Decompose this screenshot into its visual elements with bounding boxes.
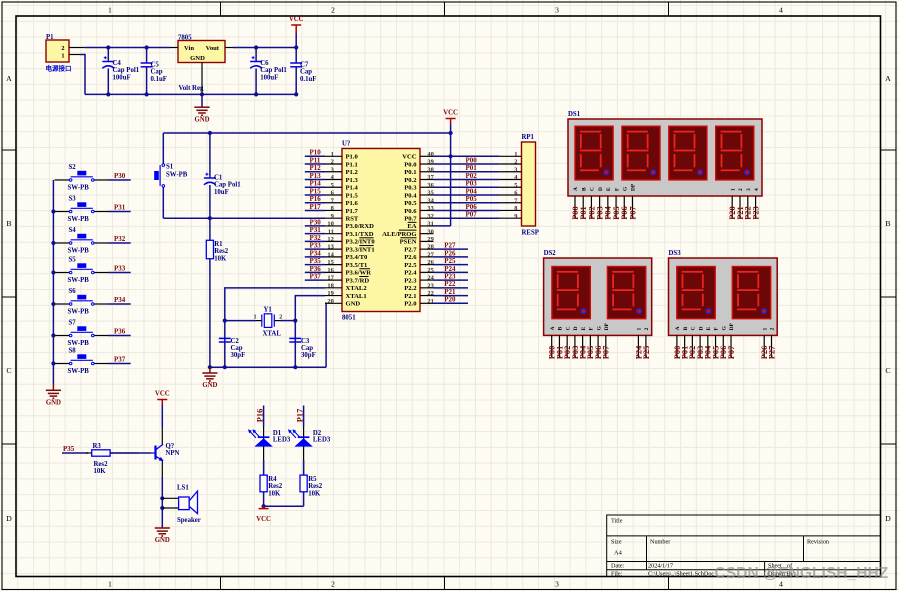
svg-text:1: 1 xyxy=(108,580,112,589)
svg-text:P07: P07 xyxy=(466,211,478,219)
svg-text:1: 1 xyxy=(730,188,736,191)
svg-text:10K: 10K xyxy=(308,490,321,497)
svg-text:8: 8 xyxy=(514,205,517,212)
svg-text:Cap: Cap xyxy=(151,69,163,76)
svg-text:GND: GND xyxy=(202,382,217,389)
svg-text:1: 1 xyxy=(254,314,257,320)
svg-text:19: 19 xyxy=(327,290,333,297)
svg-text:P0.2: P0.2 xyxy=(404,177,417,184)
svg-text:Cap Pol1: Cap Pol1 xyxy=(113,67,140,74)
svg-text:2: 2 xyxy=(331,580,335,589)
svg-text:P07: P07 xyxy=(727,346,736,360)
svg-text:1: 1 xyxy=(762,327,768,330)
svg-text:B: B xyxy=(581,187,587,191)
svg-text:Cap Pol1: Cap Pol1 xyxy=(260,67,287,74)
svg-text:SW-PB: SW-PB xyxy=(68,368,90,375)
svg-text:16: 16 xyxy=(327,267,334,274)
svg-text:P3.1/TXD: P3.1/TXD xyxy=(346,231,374,238)
svg-text:DP: DP xyxy=(604,323,610,331)
svg-text:P33: P33 xyxy=(114,264,126,272)
svg-text:P3.0/RXD: P3.0/RXD xyxy=(346,223,375,230)
svg-text:P0.4: P0.4 xyxy=(404,192,417,199)
svg-text:22: 22 xyxy=(427,290,433,297)
svg-text:15: 15 xyxy=(327,259,333,266)
svg-text:32: 32 xyxy=(427,213,433,220)
svg-text:C1: C1 xyxy=(214,175,223,182)
svg-text:0.1uF: 0.1uF xyxy=(300,76,316,83)
svg-text:P0.3: P0.3 xyxy=(404,185,417,192)
svg-text:SW-PB: SW-PB xyxy=(68,277,90,284)
svg-text:C6: C6 xyxy=(260,60,269,67)
svg-text:C: C xyxy=(565,326,571,330)
svg-text:C: C xyxy=(6,366,11,375)
svg-text:P3.2/INT0: P3.2/INT0 xyxy=(346,239,376,246)
svg-text:C3: C3 xyxy=(301,338,310,345)
svg-text:Volt Reg: Volt Reg xyxy=(179,85,204,92)
svg-text:Vout: Vout xyxy=(206,45,220,52)
svg-text:A: A xyxy=(550,326,556,330)
svg-text:File:: File: xyxy=(611,570,623,577)
svg-text:38: 38 xyxy=(427,166,433,173)
svg-text:C4: C4 xyxy=(113,60,122,67)
svg-text:GND: GND xyxy=(155,537,170,544)
svg-text:2: 2 xyxy=(279,314,282,320)
svg-text:P0.0: P0.0 xyxy=(404,161,417,168)
svg-text:Number: Number xyxy=(650,539,670,546)
svg-text:1: 1 xyxy=(637,327,643,330)
svg-text:RST: RST xyxy=(346,215,359,222)
svg-text:S6: S6 xyxy=(69,288,77,295)
svg-text:XTAL2: XTAL2 xyxy=(346,285,368,292)
svg-text:100uF: 100uF xyxy=(260,74,278,81)
svg-text:P32: P32 xyxy=(114,235,126,243)
svg-text:35: 35 xyxy=(427,190,433,197)
svg-text:A: A xyxy=(675,326,681,330)
svg-text:P27: P27 xyxy=(767,346,776,360)
svg-text:100uF: 100uF xyxy=(113,74,131,81)
svg-text:5: 5 xyxy=(514,182,517,189)
svg-text:30pF: 30pF xyxy=(231,352,246,359)
svg-text:S4: S4 xyxy=(69,227,77,234)
svg-text:P3.6/WR: P3.6/WR xyxy=(346,270,372,277)
svg-text:P20: P20 xyxy=(444,296,456,304)
svg-text:S3: S3 xyxy=(69,196,77,203)
svg-text:P1.2: P1.2 xyxy=(346,169,359,176)
svg-text:P2.7: P2.7 xyxy=(404,246,417,253)
svg-text:Title: Title xyxy=(611,518,623,525)
svg-text:U?: U? xyxy=(342,141,350,148)
svg-text:1: 1 xyxy=(514,151,517,158)
svg-text:SW-PB: SW-PB xyxy=(68,248,90,255)
svg-text:D: D xyxy=(698,326,704,330)
svg-text:ALE/PROG: ALE/PROG xyxy=(382,231,416,238)
svg-text:5: 5 xyxy=(331,182,334,189)
svg-text:3: 3 xyxy=(514,166,517,173)
svg-text:3: 3 xyxy=(331,166,334,173)
svg-text:S2: S2 xyxy=(69,164,77,171)
svg-text:2: 2 xyxy=(644,327,650,330)
svg-text:B: B xyxy=(6,219,11,228)
svg-text:P3.4/T0: P3.4/T0 xyxy=(346,254,368,261)
svg-text:Speaker: Speaker xyxy=(177,517,201,524)
svg-text:10K: 10K xyxy=(214,255,227,262)
svg-text:B: B xyxy=(683,326,689,330)
svg-text:DP: DP xyxy=(729,323,735,331)
svg-text:3: 3 xyxy=(555,6,559,15)
svg-text:2: 2 xyxy=(331,159,334,166)
svg-text:LED3: LED3 xyxy=(313,436,331,443)
svg-text:7805: 7805 xyxy=(178,35,192,42)
svg-text:EA: EA xyxy=(407,223,416,230)
svg-text:10: 10 xyxy=(327,221,333,228)
svg-text:XTAL: XTAL xyxy=(263,331,282,338)
svg-text:P2.0: P2.0 xyxy=(404,301,417,308)
svg-text:R3: R3 xyxy=(93,443,102,450)
svg-text:DP: DP xyxy=(631,183,637,191)
svg-text:P0.6: P0.6 xyxy=(404,208,417,215)
svg-text:B: B xyxy=(558,326,564,330)
svg-text:P2.6: P2.6 xyxy=(404,254,417,261)
svg-text:P1: P1 xyxy=(46,34,54,41)
svg-text:VCC: VCC xyxy=(155,390,170,397)
svg-text:R4: R4 xyxy=(268,476,277,483)
svg-text:P07: P07 xyxy=(602,346,611,360)
svg-text:B: B xyxy=(885,219,890,228)
svg-text:P1.0: P1.0 xyxy=(346,154,359,161)
svg-text:14: 14 xyxy=(327,251,334,258)
svg-text:P23: P23 xyxy=(752,206,761,220)
svg-text:VCC: VCC xyxy=(402,154,417,161)
svg-text:SW-PB: SW-PB xyxy=(68,216,90,223)
svg-text:17: 17 xyxy=(327,275,334,282)
svg-text:GND: GND xyxy=(194,116,209,123)
svg-text:Cap: Cap xyxy=(231,345,243,352)
svg-text:20: 20 xyxy=(327,298,333,305)
svg-text:30: 30 xyxy=(427,228,433,235)
svg-text:21: 21 xyxy=(427,298,433,305)
svg-text:P1.6: P1.6 xyxy=(346,200,359,207)
svg-text:A: A xyxy=(6,74,12,83)
svg-text:Res2: Res2 xyxy=(94,461,109,468)
svg-text:2024/1/17: 2024/1/17 xyxy=(648,562,673,569)
svg-text:P2.4: P2.4 xyxy=(404,270,417,277)
svg-text:1: 1 xyxy=(61,53,64,60)
svg-text:P35: P35 xyxy=(63,445,75,453)
svg-text:R5: R5 xyxy=(308,476,317,483)
svg-text:P37: P37 xyxy=(114,355,126,363)
svg-text:D: D xyxy=(573,326,579,330)
svg-text:Cap Pol1: Cap Pol1 xyxy=(214,182,241,189)
svg-text:P2.1: P2.1 xyxy=(404,293,416,300)
svg-text:P2.5: P2.5 xyxy=(404,262,417,269)
svg-text:DS2: DS2 xyxy=(544,250,557,257)
svg-text:10K: 10K xyxy=(94,468,107,475)
svg-text:4: 4 xyxy=(754,188,760,191)
svg-text:A4: A4 xyxy=(614,550,623,557)
svg-text:CSDN @ENGLISH_HHZ: CSDN @ENGLISH_HHZ xyxy=(715,565,889,582)
svg-text:1: 1 xyxy=(108,6,112,15)
svg-text:GND: GND xyxy=(46,400,61,407)
svg-text:P30: P30 xyxy=(114,172,126,180)
svg-text:SW-PB: SW-PB xyxy=(166,172,188,179)
svg-text:LS1: LS1 xyxy=(177,485,189,492)
svg-text:C: C xyxy=(691,326,697,330)
svg-text:P1.5: P1.5 xyxy=(346,192,359,199)
svg-text:2: 2 xyxy=(770,327,776,330)
svg-text:GND: GND xyxy=(190,55,205,62)
svg-text:30pF: 30pF xyxy=(301,352,316,359)
svg-text:RESP: RESP xyxy=(522,230,539,237)
svg-text:Q?: Q? xyxy=(166,443,175,450)
svg-text:C7: C7 xyxy=(300,62,309,69)
svg-text:E: E xyxy=(706,326,712,330)
svg-text:S1: S1 xyxy=(166,164,174,171)
svg-text:VCC: VCC xyxy=(256,516,271,523)
svg-text:31: 31 xyxy=(427,221,433,228)
svg-text:Size: Size xyxy=(611,539,622,546)
svg-text:D: D xyxy=(6,514,12,523)
svg-text:NPN: NPN xyxy=(166,450,180,457)
svg-text:E: E xyxy=(581,326,587,330)
svg-text:Res2: Res2 xyxy=(214,248,229,255)
svg-text:29: 29 xyxy=(427,236,433,243)
svg-text:C:\Users\..\Sheet1.SchDoc: C:\Users\..\Sheet1.SchDoc xyxy=(648,570,714,577)
svg-text:11: 11 xyxy=(328,228,334,235)
svg-text:SW-PB: SW-PB xyxy=(68,340,90,347)
svg-text:Cap: Cap xyxy=(301,345,313,352)
svg-text:D: D xyxy=(885,514,891,523)
svg-text:3: 3 xyxy=(746,188,752,191)
svg-text:S7: S7 xyxy=(69,320,77,327)
svg-text:Revision: Revision xyxy=(807,539,829,546)
svg-text:P36: P36 xyxy=(114,327,126,335)
svg-text:9: 9 xyxy=(514,213,517,220)
svg-text:P0.5: P0.5 xyxy=(404,200,417,207)
svg-text:28: 28 xyxy=(427,244,433,251)
svg-text:S5: S5 xyxy=(69,257,77,264)
svg-text:P37: P37 xyxy=(310,272,322,280)
svg-text:P07: P07 xyxy=(628,206,637,220)
svg-text:R1: R1 xyxy=(214,241,223,248)
svg-text:P1.3: P1.3 xyxy=(346,177,359,184)
svg-text:A: A xyxy=(885,74,891,83)
svg-text:C: C xyxy=(590,187,596,191)
svg-text:P3.7/RD: P3.7/RD xyxy=(346,277,370,284)
svg-text:Res2: Res2 xyxy=(268,483,283,490)
svg-text:电源接口: 电源接口 xyxy=(46,64,72,73)
svg-text:P17: P17 xyxy=(310,203,322,211)
svg-text:39: 39 xyxy=(427,159,433,166)
svg-text:DS3: DS3 xyxy=(669,250,682,257)
svg-text:DS1: DS1 xyxy=(568,111,581,118)
svg-text:SW-PB: SW-PB xyxy=(68,185,90,192)
svg-text:P0.1: P0.1 xyxy=(404,169,416,176)
svg-text:P31: P31 xyxy=(114,203,126,211)
svg-text:PSEN: PSEN xyxy=(400,239,417,246)
svg-text:4: 4 xyxy=(779,6,783,15)
svg-text:9: 9 xyxy=(331,213,334,220)
svg-text:3: 3 xyxy=(555,580,559,589)
svg-text:13: 13 xyxy=(327,244,333,251)
svg-text:25: 25 xyxy=(427,267,433,274)
svg-text:VCC: VCC xyxy=(289,16,304,23)
svg-text:GND: GND xyxy=(346,301,361,308)
svg-text:1: 1 xyxy=(331,151,334,158)
svg-text:Vin: Vin xyxy=(184,45,194,52)
svg-text:Y1: Y1 xyxy=(264,307,273,314)
svg-text:10K: 10K xyxy=(268,490,281,497)
svg-text:RP1: RP1 xyxy=(522,134,535,141)
svg-text:P2.3: P2.3 xyxy=(404,277,417,284)
svg-text:E: E xyxy=(606,187,612,191)
svg-text:C2: C2 xyxy=(231,338,240,345)
svg-text:40: 40 xyxy=(427,151,433,158)
svg-text:D: D xyxy=(598,187,604,191)
svg-text:C: C xyxy=(885,366,890,375)
svg-text:2: 2 xyxy=(331,6,335,15)
svg-text:S8: S8 xyxy=(69,348,77,355)
svg-text:P1.7: P1.7 xyxy=(346,208,359,215)
svg-text:10uF: 10uF xyxy=(214,189,229,196)
svg-text:2: 2 xyxy=(738,188,744,191)
svg-text:LED3: LED3 xyxy=(273,436,291,443)
svg-text:12: 12 xyxy=(327,236,333,243)
svg-text:SW-PB: SW-PB xyxy=(68,309,90,316)
svg-text:P1.1: P1.1 xyxy=(346,161,358,168)
svg-text:Cap: Cap xyxy=(300,69,312,76)
svg-text:18: 18 xyxy=(327,282,333,289)
svg-text:2: 2 xyxy=(61,45,64,52)
svg-text:P1.4: P1.4 xyxy=(346,185,359,192)
svg-text:2: 2 xyxy=(514,159,517,166)
svg-text:XTAL1: XTAL1 xyxy=(346,293,367,300)
svg-text:33: 33 xyxy=(427,205,433,212)
svg-text:23: 23 xyxy=(427,282,433,289)
svg-text:P3.3/INT1: P3.3/INT1 xyxy=(346,246,375,253)
svg-text:P2.2: P2.2 xyxy=(404,285,417,292)
svg-text:0.1uF: 0.1uF xyxy=(151,76,167,83)
svg-text:Date:: Date: xyxy=(611,562,625,569)
svg-text:Res2: Res2 xyxy=(308,483,323,490)
svg-text:C5: C5 xyxy=(151,62,160,69)
svg-text:8051: 8051 xyxy=(342,315,356,322)
svg-text:A: A xyxy=(573,187,579,191)
svg-text:P34: P34 xyxy=(114,296,126,304)
svg-text:P25: P25 xyxy=(642,346,651,360)
svg-text:P0.7: P0.7 xyxy=(404,215,417,222)
svg-text:8: 8 xyxy=(331,205,334,212)
svg-text:P3.5/T1: P3.5/T1 xyxy=(346,262,368,269)
svg-text:VCC: VCC xyxy=(443,109,458,116)
